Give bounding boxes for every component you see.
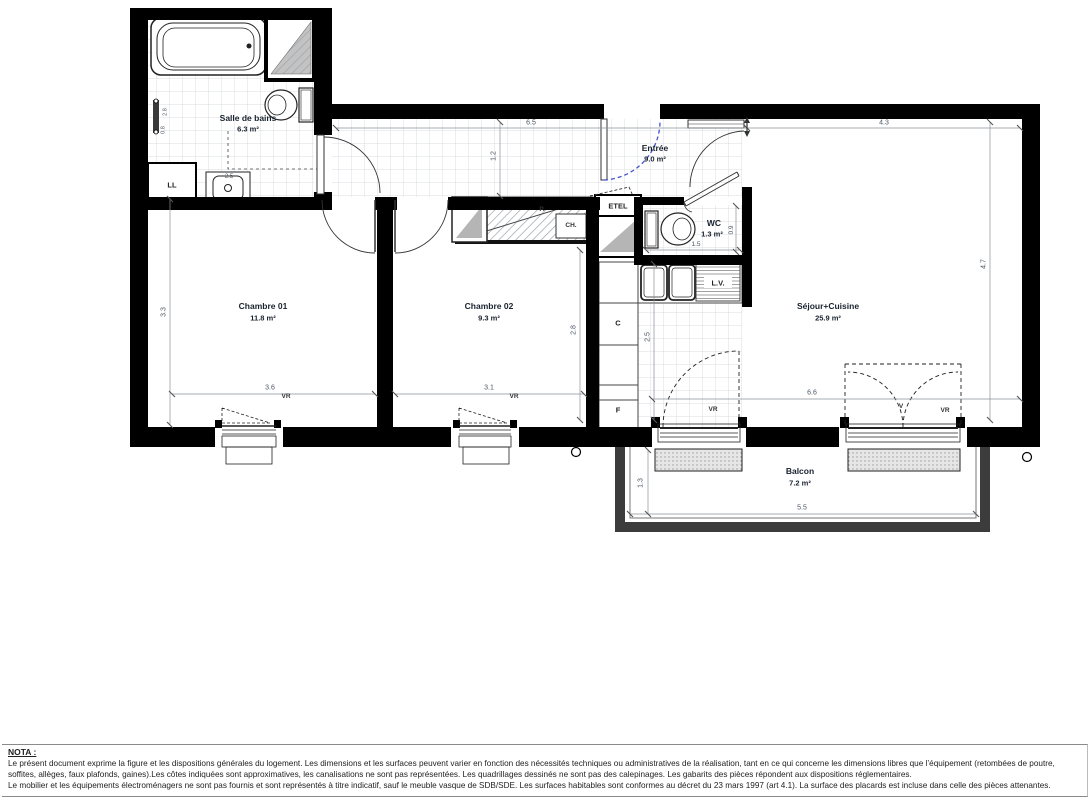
dim-bathroom-left-a: 2.8: [163, 108, 169, 116]
drain-post-left: [572, 448, 581, 457]
room-label-living: Séjour+Cuisine: [797, 302, 859, 311]
dim-bedroom2-height: 2.8: [571, 325, 578, 335]
nota-line-3: Le mobilier et les équipements électromé…: [8, 780, 1081, 791]
dim-wc-depth: 0.9: [729, 225, 736, 234]
water-heater-label: CH.: [565, 223, 576, 230]
dim-living-top: 4.3: [879, 120, 889, 127]
duct-bathroom: [266, 18, 314, 80]
room-area-bedroom1: 11.8 m²: [250, 314, 275, 322]
room-area-living: 25.9 m²: [815, 314, 841, 322]
nota-line-1: Le présent document exprime la figure et…: [8, 758, 1081, 769]
drain-post-right: [1023, 453, 1032, 462]
nota-line-2: soffites, allèges, faux plafonds, gaines…: [8, 769, 1081, 780]
bedroom2-window: [459, 408, 511, 464]
room-area-wc: 1.3 m²: [701, 230, 723, 238]
dim-kitchen-depth: 2.5: [645, 332, 652, 342]
dim-bedroom1-height: 3.3: [161, 307, 168, 317]
etel-label: ETEL: [608, 202, 627, 210]
shutter-label-bedroom1: VR: [281, 394, 290, 401]
balcony-door-right: [845, 364, 961, 471]
room-label-bedroom1: Chambre 01: [239, 302, 288, 311]
dim-bathroom-left-b: 0.8: [161, 126, 167, 134]
dim-hall-depth: 1.2: [491, 151, 498, 161]
room-label-bathroom: Salle de bains: [220, 114, 277, 123]
dim-bathroom-basin: 2.5: [225, 174, 233, 180]
room-area-balcony: 7.2 m²: [789, 479, 811, 487]
floor-plan-page: Salle de bains 6.3 m² Chambre 01 11.8 m²…: [0, 0, 1092, 800]
dim-wc-width: 1.5: [691, 242, 700, 249]
fridge-label: F: [616, 406, 621, 414]
cooker-label: C: [615, 319, 620, 327]
dim-balcony-depth: 1.3: [638, 478, 645, 488]
bedroom2-door: [395, 200, 448, 253]
partition-arrow: [744, 117, 750, 137]
vent-label: V: [899, 404, 903, 411]
shutter-label-balcony-right: VR: [940, 408, 949, 415]
radiator: [153, 99, 159, 134]
room-area-entry: 9.0 m²: [644, 155, 666, 163]
closet-label: P.: [539, 207, 544, 214]
bedroom1-window: [222, 408, 276, 464]
bathtub: [151, 18, 266, 75]
dim-bedroom2-width: 3.1: [484, 385, 494, 392]
room-area-bathroom: 6.3 m²: [237, 125, 259, 133]
room-area-bedroom2: 9.3 m²: [478, 314, 500, 322]
dim-bedroom1-width: 3.6: [265, 385, 275, 392]
nota-block: NOTA : Le présent document exprime la fi…: [2, 744, 1088, 797]
dim-balcony-width: 5.5: [797, 505, 807, 512]
nota-heading: NOTA :: [8, 747, 1081, 757]
room-label-entry: Entrée: [642, 144, 668, 153]
washing-machine-label: LL: [167, 181, 176, 189]
room-label-wc: WC: [707, 219, 721, 228]
dim-entry-top: 6.5: [526, 120, 536, 127]
shutter-label-bedroom2: VR: [509, 394, 518, 401]
room-label-bedroom2: Chambre 02: [465, 302, 514, 311]
balcony-structure: [572, 447, 1032, 532]
dim-living-height: 4.7: [981, 259, 988, 269]
dim-living-width: 6.6: [807, 390, 817, 397]
dishwasher-label: L.V.: [711, 279, 724, 287]
shutter-label-balcony-left: VR: [708, 407, 717, 414]
wc-toilet: [645, 211, 695, 248]
room-label-balcony: Balcon: [786, 467, 814, 476]
